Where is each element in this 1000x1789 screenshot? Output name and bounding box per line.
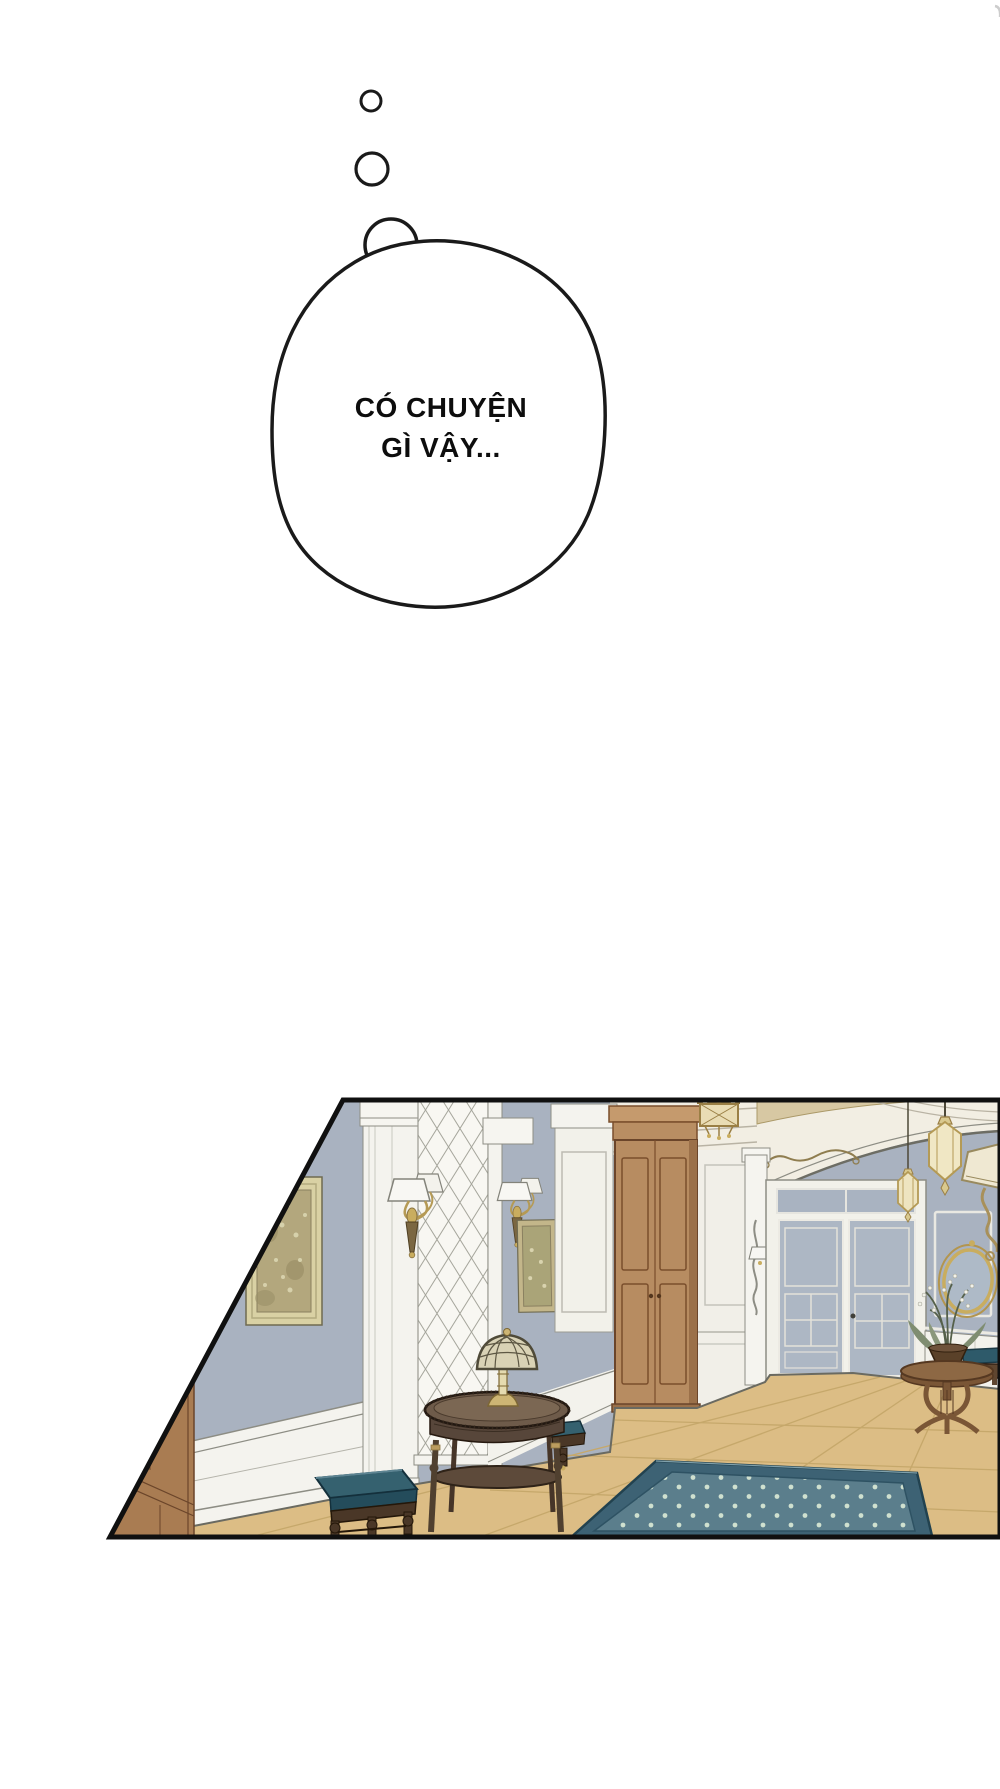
hallway-panel: [95, 1095, 1000, 1548]
door-handle: [851, 1314, 856, 1319]
thought-bubble-text: CÓ CHUYỆN GÌ VẬY...: [321, 388, 561, 468]
painting-left: [246, 1177, 322, 1325]
comic-page-art: [0, 0, 1000, 1789]
edge-mark: [995, 6, 1000, 17]
bubble-line-1: CÓ CHUYỆN: [321, 388, 561, 428]
bubble-line-2: GÌ VẬY...: [321, 428, 561, 468]
tall-white-panel: [551, 1104, 617, 1332]
thought-dot-small: [361, 91, 381, 111]
wall-beside-arch: [695, 1148, 771, 1410]
thought-trail: [356, 91, 388, 185]
double-door: [766, 1180, 926, 1382]
thought-dot-large: [356, 153, 388, 185]
near-wood-door: [96, 1366, 194, 1540]
painting-far: [517, 1220, 557, 1313]
arch-pilaster: [745, 1155, 767, 1385]
wood-cabinet: [609, 1106, 701, 1412]
